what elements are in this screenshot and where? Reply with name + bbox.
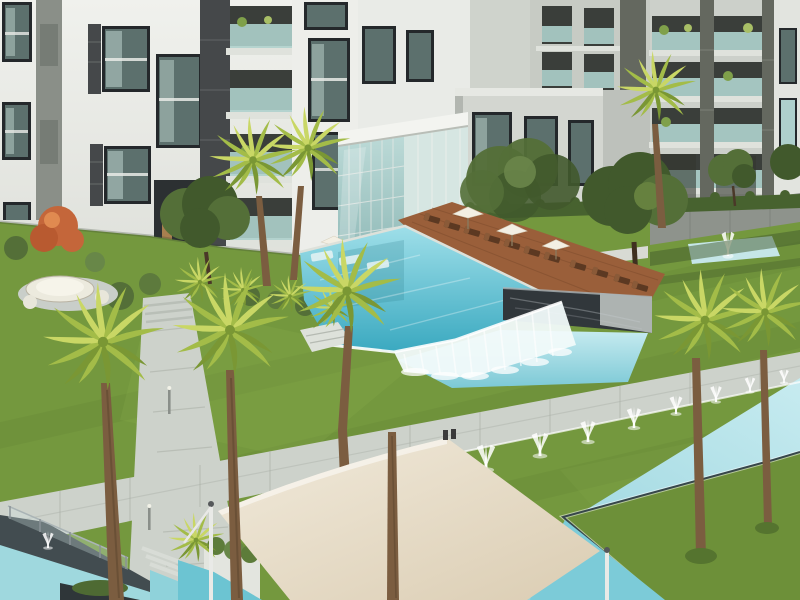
property-rendering-image: Architectural rendering of a modern resi… [0, 0, 800, 600]
courtyard-rendering: Architectural rendering of a modern resi… [0, 0, 800, 600]
